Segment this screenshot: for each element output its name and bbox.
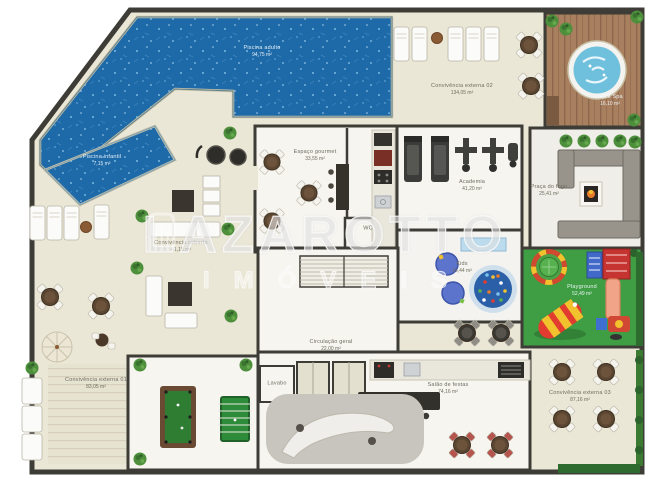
games-room xyxy=(128,356,258,470)
kids-room xyxy=(397,230,522,322)
bean-bag xyxy=(442,282,465,304)
gourmet-block xyxy=(252,126,397,252)
gourmet-counter xyxy=(336,164,349,210)
fire-pit xyxy=(580,182,602,206)
circulation-core xyxy=(258,248,398,352)
fire-lounge-room xyxy=(530,128,642,250)
treadmill xyxy=(431,136,449,182)
floor-plan-canvas xyxy=(0,0,650,500)
spa-bench xyxy=(547,96,559,125)
kids-mini-pool xyxy=(461,238,506,251)
foosball-table xyxy=(218,397,252,441)
parasol xyxy=(42,332,72,362)
gourmet-door xyxy=(252,166,258,190)
sun-loungers-left xyxy=(30,205,109,240)
playground-area xyxy=(522,248,642,347)
lounge-rug xyxy=(266,394,424,464)
hall-kitchen-counter xyxy=(370,360,530,380)
treadmill xyxy=(404,136,422,182)
hot-tub xyxy=(568,41,626,99)
ball-pit xyxy=(469,265,517,313)
trampoline xyxy=(534,252,565,283)
party-hall xyxy=(258,352,530,470)
boardwalk xyxy=(48,364,130,464)
spa-deck xyxy=(545,13,642,127)
pool-table xyxy=(160,386,196,448)
floor-plan-screenshot: Piscina adulto94,75 m²Piscina infantil7,… xyxy=(0,0,650,500)
gym-room xyxy=(397,126,522,230)
stairs xyxy=(300,256,388,287)
bean-bag xyxy=(436,253,458,275)
elevator xyxy=(297,362,329,398)
kitchen-counter xyxy=(372,130,395,248)
